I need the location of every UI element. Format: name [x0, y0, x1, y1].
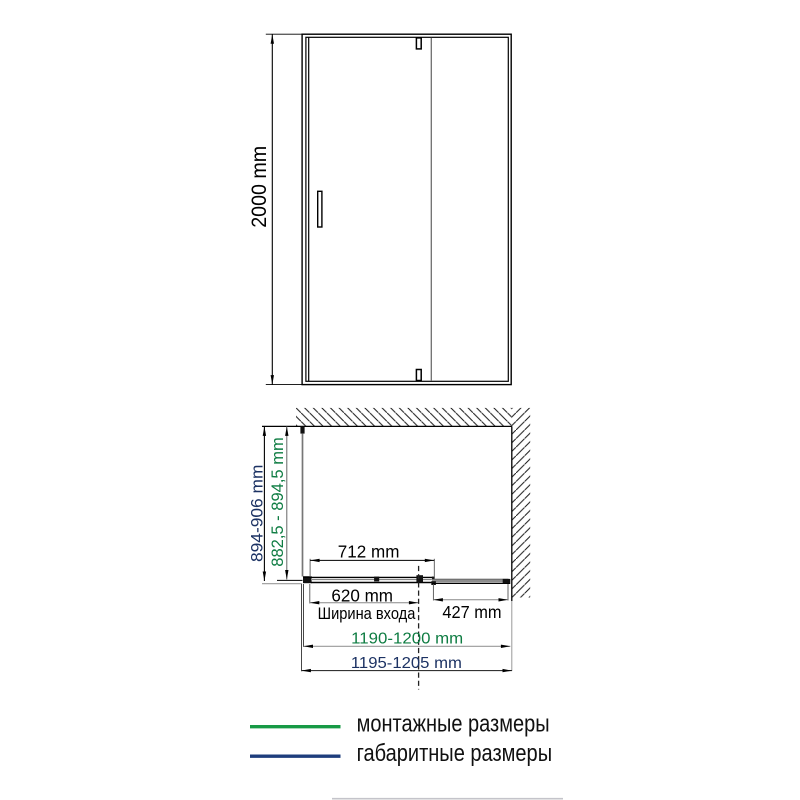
svg-text:894-906 mm: 894-906 mm — [249, 465, 267, 562]
svg-text:427 mm: 427 mm — [442, 602, 501, 622]
svg-text:2000 mm: 2000 mm — [248, 146, 271, 228]
svg-text:882,5 - 894,5 mm: 882,5 - 894,5 mm — [269, 437, 287, 567]
svg-text:1195-1205 mm: 1195-1205 mm — [351, 655, 462, 672]
svg-text:габаритные размеры: габаритные размеры — [357, 740, 552, 767]
svg-text:1190-1200 mm: 1190-1200 mm — [351, 631, 463, 648]
svg-text:620 mm: 620 mm — [331, 585, 393, 605]
svg-text:Ширина входа: Ширина входа — [318, 604, 416, 623]
svg-text:712 mm: 712 mm — [338, 542, 400, 562]
svg-text:монтажные размеры: монтажные размеры — [357, 711, 550, 738]
